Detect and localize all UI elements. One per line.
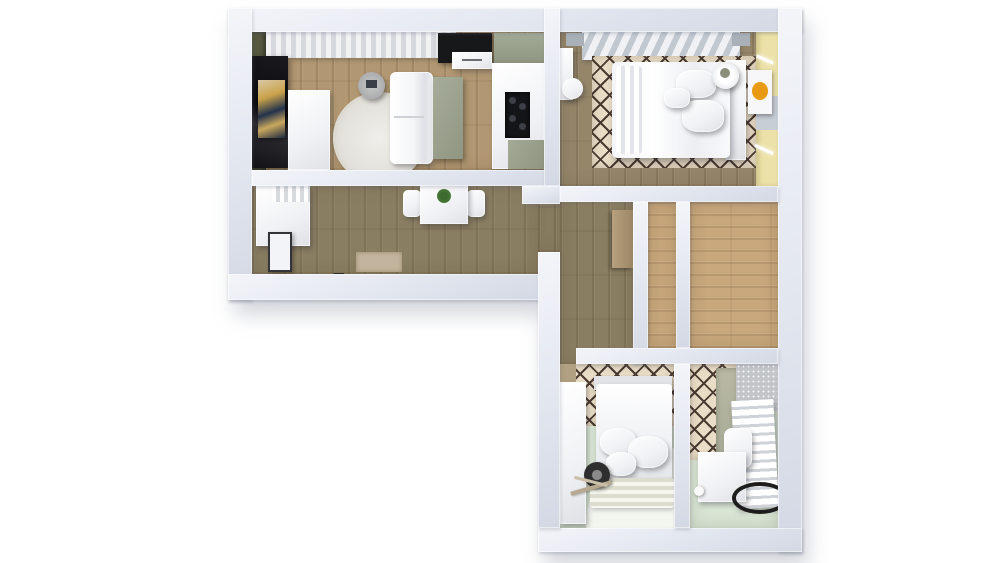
wall-top — [228, 8, 802, 32]
window-curtains — [266, 32, 456, 58]
sink-slot — [462, 59, 482, 61]
open-interior-door — [612, 210, 633, 268]
wall-right-outer — [778, 8, 802, 552]
coffee-table-book — [366, 80, 377, 88]
doormat — [356, 252, 402, 272]
wall-bottom-outer — [538, 528, 802, 552]
kids-pillow-3 — [606, 452, 636, 476]
floor-nursery-corner — [690, 364, 778, 528]
wall-storage-divider — [676, 202, 690, 348]
wall-left — [228, 8, 252, 300]
base-cabinet-sage — [508, 140, 544, 169]
upper-cabinets-sage — [494, 33, 544, 63]
wall-stub-kitchen — [522, 186, 560, 204]
orange-circle — [752, 82, 768, 100]
kitchen-island — [433, 77, 463, 159]
wall-kitchen-bedroom — [544, 8, 560, 186]
wall-living-hall — [252, 170, 560, 186]
leaning-mirror — [268, 232, 292, 272]
floor-storage-large — [690, 202, 778, 348]
desk-chair — [562, 78, 583, 99]
ring-rug — [732, 482, 778, 514]
wall-corridor-storage — [633, 202, 648, 364]
burner-2 — [519, 103, 526, 110]
nightstand-plant — [720, 68, 730, 78]
burner-1 — [509, 97, 516, 104]
dining-chair-left — [403, 190, 421, 217]
burner-3 — [509, 115, 516, 122]
dining-chair-right — [467, 190, 485, 217]
wall-hall-bottom — [228, 274, 546, 300]
pillow-main-3 — [664, 88, 690, 108]
floor-plan-stage — [0, 0, 1000, 563]
wall-bedroom-bottom — [560, 186, 778, 202]
table-plant — [437, 189, 451, 203]
wall-bedrooms-divider — [674, 364, 690, 528]
blind-cap-left — [566, 33, 584, 46]
floor-storage-small — [648, 202, 676, 348]
colorful-art-print — [258, 80, 285, 138]
burner-4 — [519, 123, 526, 130]
sofa-cushion-seam — [394, 116, 424, 118]
apartment-plan — [0, 0, 1000, 563]
toy-ball — [694, 486, 704, 496]
blind-cap-right — [732, 33, 750, 46]
wall-middle-bottom — [576, 348, 778, 364]
pillow-main-2 — [682, 100, 724, 132]
sideboard — [288, 90, 330, 170]
duvet-fold — [616, 66, 642, 154]
kids-wardrobe — [560, 382, 586, 524]
wardrobe-open-shelves — [272, 186, 310, 202]
wall-column-left — [538, 252, 560, 528]
sofa — [390, 72, 433, 164]
